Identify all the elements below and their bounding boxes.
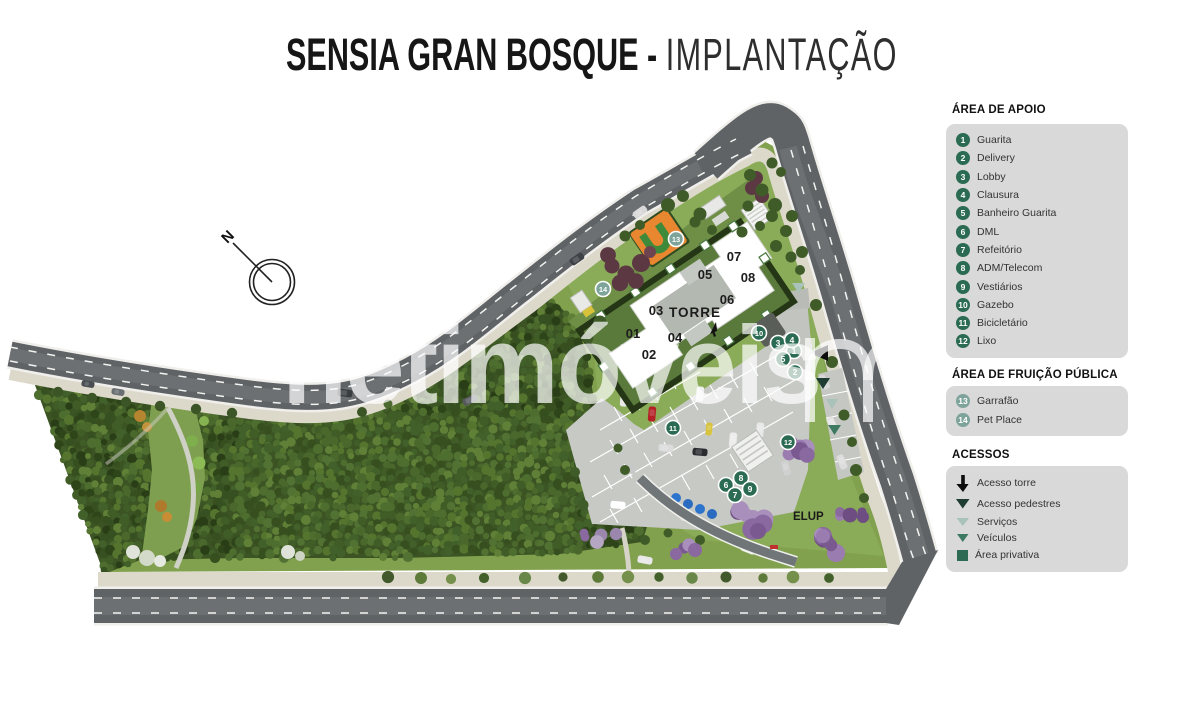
svg-text:13: 13 [672, 235, 680, 244]
svg-text:8: 8 [739, 473, 744, 483]
svg-text:05: 05 [698, 267, 712, 282]
svg-text:12: 12 [784, 438, 792, 447]
svg-text:9: 9 [748, 484, 753, 494]
svg-text:6: 6 [724, 480, 729, 490]
svg-text:14: 14 [599, 285, 608, 294]
svg-text:ELUP: ELUP [793, 511, 824, 523]
svg-text:7: 7 [733, 490, 738, 500]
svg-text:07: 07 [727, 249, 741, 264]
svg-text:08: 08 [741, 270, 755, 285]
